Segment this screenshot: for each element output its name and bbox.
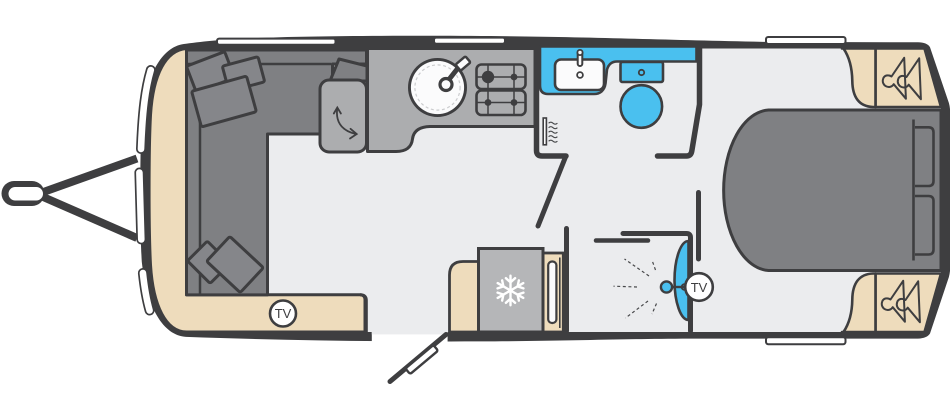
svg-text:TV: TV xyxy=(691,280,708,295)
svg-text:TV: TV xyxy=(275,306,292,321)
